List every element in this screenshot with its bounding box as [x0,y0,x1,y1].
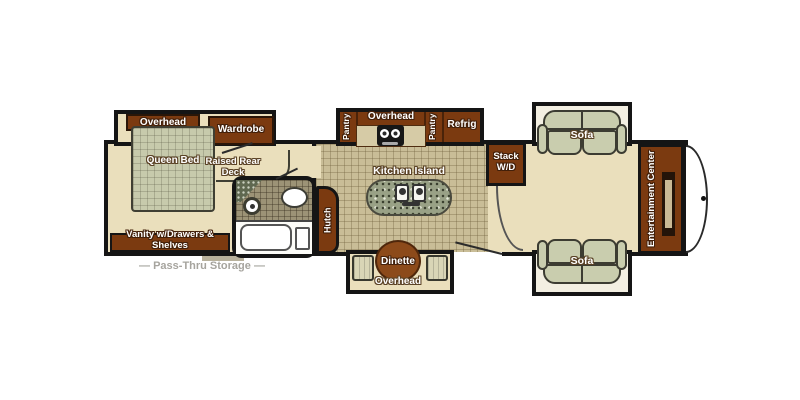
bedroom-overhead-label: Overhead [126,117,200,128]
island-sink-left-basin [399,188,406,195]
oven-handle [382,142,398,145]
sofa-front-arm-right [616,240,627,270]
sofa-rear-label: Sofa [552,130,612,142]
island-sink-right-basin [416,188,423,195]
dinette-overhead-label: Overhead [358,276,438,287]
kitchen-island-label: Kitchen Island [356,166,462,178]
sofa-rear-back-seam [581,112,583,128]
queen-bed-label: Queen Bed [146,155,200,166]
shower-pan [240,224,292,251]
raised-rear-deck-label: Raised Rear Deck [201,157,265,178]
island-faucet [402,202,420,206]
sofa-rear-arm-right [616,124,627,154]
shower-seat [295,227,310,250]
sink-drain [250,204,255,209]
kitchen-overhead-label: Overhead [356,111,426,122]
sofa-front-back-seam [581,266,583,282]
dinette-label: Dinette [373,256,423,267]
vanity-label: Vanity w/Drawers & Shelves [108,230,232,251]
hutch-label: Hutch [316,188,339,252]
island-sink-right [412,184,426,202]
kitchen-island [366,179,452,216]
island-sink-left [395,184,409,202]
cooktop-symbol [377,125,404,146]
hitch-pin-dot [701,196,706,201]
entertainment-center-label: Entertainment Center [640,146,663,252]
rv-floorplan: Overhead Wardrobe Queen Bed Raised Rear … [0,0,800,400]
sofa-front-label: Sofa [552,256,612,268]
toilet-symbol [281,187,308,208]
pass-thru-storage-label: — Pass-Thru Storage — [97,260,307,272]
wardrobe-label: Wardrobe [208,124,274,135]
refrigerator-label: Refrig [442,110,482,140]
burner-right [391,129,400,138]
bathroom-sink-symbol [243,197,261,215]
hallway-passage [308,146,321,178]
pantry-right-label: Pantry [424,109,442,145]
burner-left [380,129,389,138]
pantry-left-label: Pantry [338,109,356,145]
stack-wd-label: Stack W/D [486,152,526,173]
tv [662,172,675,236]
tv-screen [665,180,672,228]
